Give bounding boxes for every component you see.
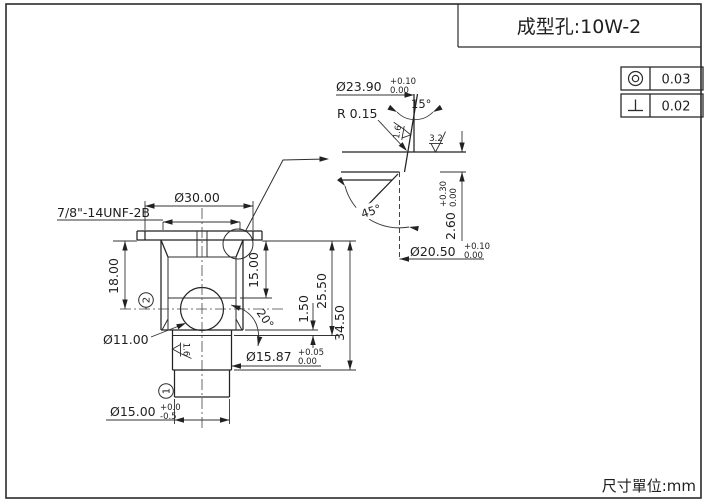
dim-stem-dia-15-87: Ø15.87 [246,349,292,364]
thread-callout: 7/8"-14UNF-2B [57,205,150,220]
datum-2-label: 2 [142,297,153,303]
roughness-symbol-taper: 1.6 [391,122,412,141]
concentricity-value: 0.03 [662,73,691,88]
counterbore-depth-tol-dn: 0.00 [449,188,459,207]
perpendicularity-icon [628,100,643,111]
datum-balloon-2: 2 [139,293,154,310]
arrowhead [337,177,347,188]
arrowhead [387,105,398,114]
drawing-sheet: 成型孔:10W-2 尺寸單位:mm 0.03 0.02 [0,0,707,504]
dim-seat-dia-20-50: Ø20.50 [410,244,456,259]
counterbore-depth-tol-up: +0.30 [439,181,449,207]
arrowhead [432,105,443,114]
arrowhead [244,203,254,208]
perpendicularity-value: 0.02 [662,100,691,115]
arrowhead [310,321,315,331]
arrowhead [122,300,127,310]
main-view: 7/8"-14UNF-2B Ø30.00 18.00 15.00 1.50 25… [57,156,356,431]
arrowhead [231,219,241,224]
roughness-symbol-bore: 1.6 [173,343,192,359]
datum-1-label: 1 [162,388,173,394]
arrowhead [232,363,242,368]
dim-tip-dia-tol-dn: -0.5 [160,412,177,422]
arrowhead [310,336,315,346]
units-note: 尺寸單位:mm [602,477,696,495]
datum-balloon-1: 1 [159,384,174,399]
chamfer-angle-label: 45° [359,201,383,221]
roughness-bore-value: 1.6 [181,343,191,357]
counterbore-depth-label: 2.60 [443,212,458,240]
title-block-text: 成型孔:10W-2 [517,16,642,38]
arrowhead [347,361,352,371]
dim-land-1-50: 1.50 [296,295,311,323]
dim-bore-dia-23-90: Ø23.90 [336,79,382,94]
arrowhead [329,241,334,251]
roughness-face-value: 3.2 [429,134,443,144]
dim-depth-25-50: 25.50 [314,273,329,309]
roughness-symbol-face: 3.2 [429,132,446,153]
dim-dia-30: Ø30.00 [174,190,220,205]
dim-tip-dia-15-00: Ø15.00 [110,404,156,419]
dim-depth-34-50: 34.50 [332,305,347,341]
dim-counterbore-depth: 2.60 +0.30 0.00 [439,181,459,240]
detail-balloon [223,159,326,259]
arrowhead [230,302,241,310]
dim-seat-dia-tol-dn: 0.00 [464,251,483,261]
arrowhead [400,256,410,261]
arrowhead [459,172,464,182]
arrowhead [409,224,419,231]
dim-depth-15: 15.00 [246,252,261,288]
arrowhead [163,219,173,224]
arrowhead [347,241,352,251]
part-outline [137,231,262,397]
dim-depth-18: 18.00 [106,258,121,294]
arrowhead [459,143,464,153]
arrowhead [220,417,230,422]
dim-corner-radius: R 0.15 [337,106,378,121]
arrowhead [320,156,330,161]
arrowhead [122,241,127,251]
detail-view: Ø23.90 +0.10 0.00 15° R 0.15 1.6 3.2 45° [336,77,490,262]
dim-taper-angle-15: 15° [411,97,431,111]
arrowhead [263,241,268,251]
dim-ball-dia-11: Ø11.00 [103,332,149,347]
concentricity-icon [629,72,643,86]
dim-bore-dia-tol-dn: 0.00 [390,86,409,96]
dim-stem-dia-tol-dn: 0.00 [298,357,317,367]
arrowhead [255,336,262,346]
arrowhead [263,289,268,299]
